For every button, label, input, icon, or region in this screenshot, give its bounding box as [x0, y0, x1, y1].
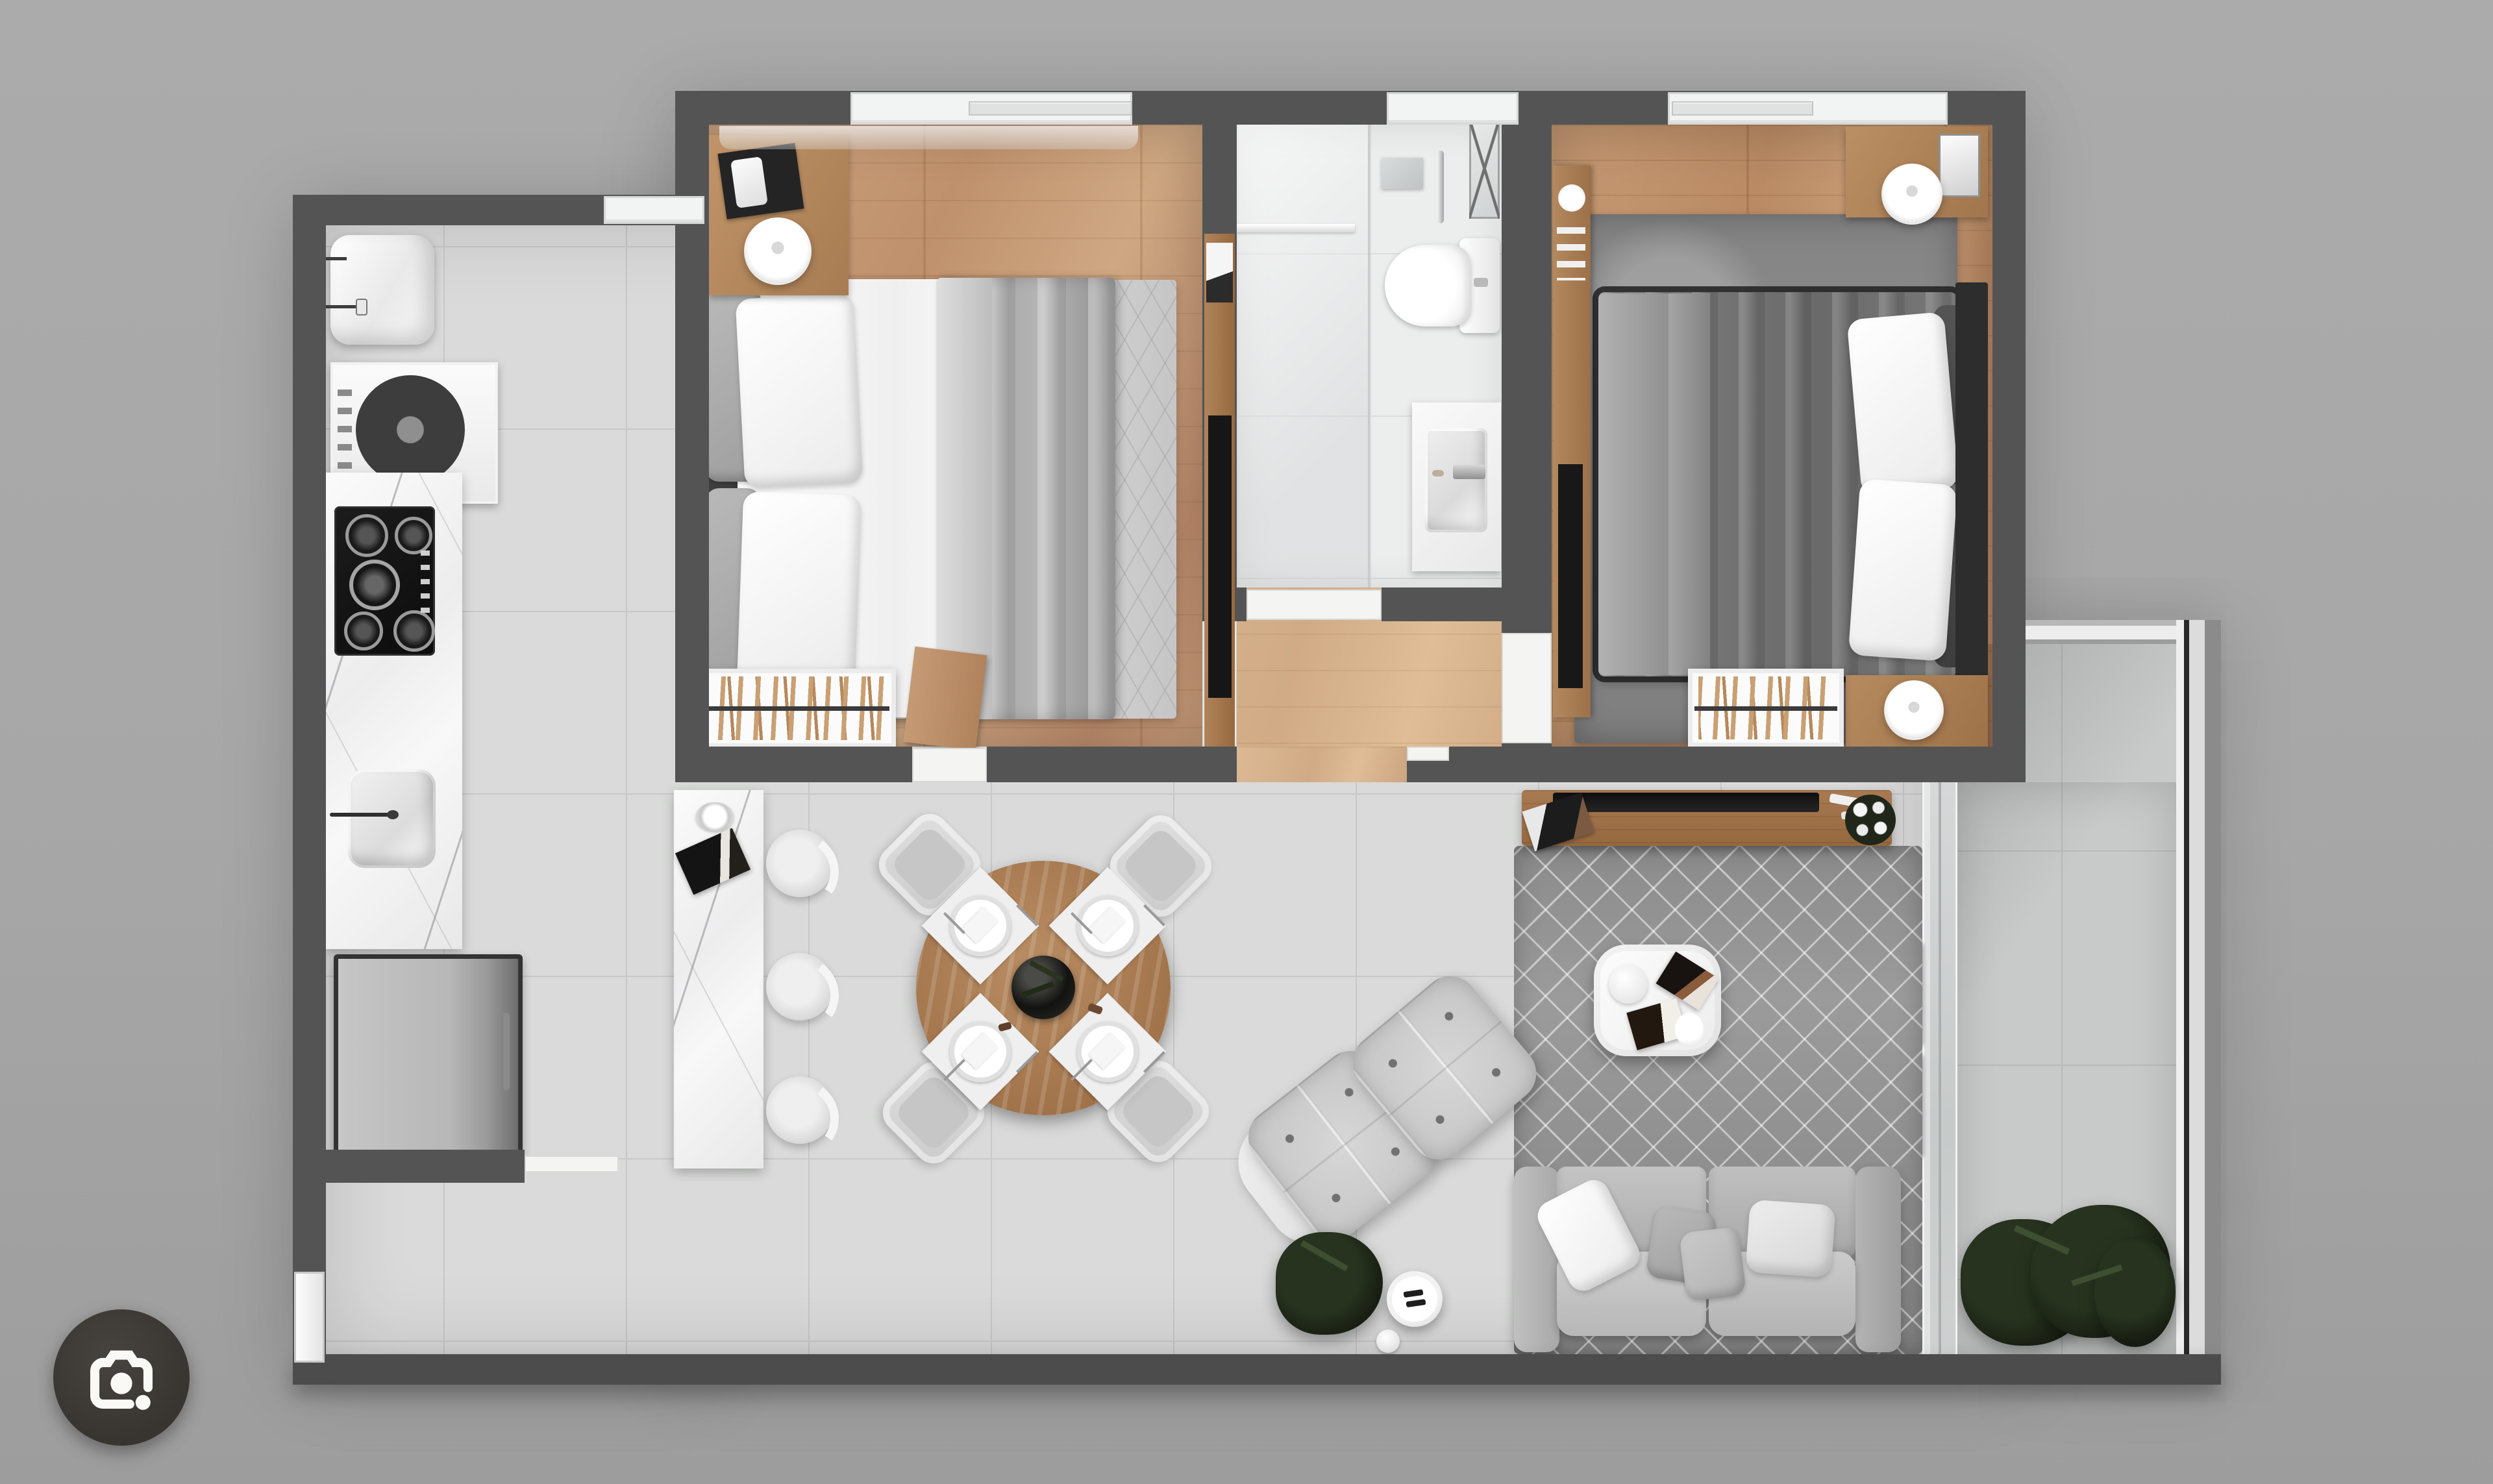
toilet-bowl [1385, 245, 1470, 327]
bed1-pillow [737, 491, 862, 690]
balcony-plant [2094, 1237, 2176, 1347]
bedroom1-door-threshold [912, 748, 987, 782]
sink-faucet [325, 257, 347, 260]
sofa-armrest-left [1514, 1167, 1559, 1352]
hallway-opening-floor [1237, 747, 1407, 782]
napkin [1089, 1033, 1126, 1070]
balcony-right-window-frame [2176, 620, 2221, 1354]
coffee-table-bowl [1675, 1013, 1704, 1046]
hall-opening-jamb [1407, 747, 1449, 761]
tv-screen [1553, 793, 1819, 812]
wall-bottom [293, 1354, 2221, 1385]
cooktop-controls [421, 550, 430, 613]
wall-bedroom2-left [1502, 91, 1552, 633]
vanity-soap [1432, 470, 1444, 476]
wall-left [293, 195, 326, 1385]
bed2-pillow [1848, 478, 1958, 662]
dinner-plate [1077, 1021, 1138, 1082]
shelf-rail [700, 706, 889, 711]
toilet-flush-button [1474, 278, 1488, 287]
washer-controls [338, 390, 352, 480]
coffee-table-disc [1609, 965, 1648, 1004]
kitchen-sink [330, 235, 434, 345]
sofa-pillow-gray [1679, 1226, 1746, 1302]
living-plant [1276, 1232, 1383, 1335]
side-table [1387, 1271, 1443, 1327]
bar-plate [696, 802, 734, 831]
refrigerator-handle [503, 1013, 510, 1091]
burner [395, 517, 432, 554]
bed2-headboard [1955, 282, 1988, 688]
vanity-faucet [1453, 465, 1485, 479]
wardrobe-tv-panel [1558, 464, 1583, 688]
nightstand-frame [1939, 134, 1980, 197]
bedroom2-window-sash [1672, 101, 1813, 116]
bathroom-window [1387, 92, 1519, 125]
wall-right [1992, 91, 2026, 782]
entry-door [294, 1272, 325, 1363]
shower-area [1237, 125, 1370, 587]
balcony-light-shadow [1957, 644, 2176, 1033]
bar-stool [766, 953, 834, 1020]
washer-drum [356, 375, 465, 484]
counter-sink-faucet-head [387, 810, 399, 819]
shower-rail [1437, 151, 1444, 223]
burner [344, 612, 383, 650]
bed1-pillow [735, 293, 863, 488]
bed2-sheet-drape [1598, 293, 1671, 675]
bedside-lamp [1884, 680, 1944, 740]
vanity-basin [1425, 428, 1487, 532]
towel-ladder [1469, 118, 1500, 219]
bedroom1-tv-panel [1208, 415, 1232, 698]
sofa-pillow-light [1745, 1200, 1835, 1278]
shower-control-panel [1382, 158, 1423, 189]
kitchen-stub-threshold [525, 1156, 619, 1172]
bedroom2-door-threshold [1502, 633, 1552, 743]
bed2-sheet-fold [1668, 293, 1710, 675]
bedroom1-window-sash [969, 101, 1132, 116]
camera-lens-icon [80, 1336, 163, 1419]
wardrobe-items [1557, 227, 1585, 280]
bar-stool [766, 1076, 834, 1144]
bedroom1-bookshelf [693, 669, 896, 748]
kitchen-window [604, 196, 704, 224]
napkin [961, 1033, 998, 1070]
bedside-lamp [1881, 164, 1942, 225]
console-plant-pot [1845, 795, 1896, 845]
glass-door-divider [1939, 782, 1941, 1354]
bedroom1-wall-art [1206, 243, 1233, 303]
wardrobe-dish [1558, 184, 1585, 212]
wall-bottom-band-2 [987, 747, 1237, 782]
floor-plan [0, 0, 2493, 1484]
bathroom-door-threshold [1246, 589, 1382, 620]
bedroom1-door-leaf [903, 647, 987, 751]
bar-stool [766, 830, 834, 897]
burner [345, 514, 388, 557]
lens-camera-button[interactable] [53, 1309, 190, 1446]
sofa-armrest-right [1855, 1167, 1901, 1352]
refrigerator [334, 954, 523, 1159]
napkin [961, 907, 998, 944]
wall-bottom-band-1 [675, 747, 912, 782]
side-table-logo [1406, 1299, 1426, 1307]
bed2-pillow [1846, 312, 1959, 496]
shelf-rail [1694, 706, 1837, 711]
burner [393, 610, 435, 652]
napkin [1089, 907, 1126, 944]
towel-bar [1237, 224, 1355, 232]
bedroom1-curtain [719, 126, 1138, 149]
counter-sink-faucet [330, 813, 392, 817]
sink-faucet-handle [356, 299, 367, 315]
burner [349, 560, 400, 610]
bedside-lamp [744, 217, 812, 285]
ladder-cross [1469, 118, 1500, 219]
wall-kitchen-stub [293, 1150, 525, 1183]
side-table-logo [1404, 1289, 1424, 1298]
nightstand-phone [730, 156, 768, 208]
wall-bottom-band-bedroom2 [1552, 747, 2026, 782]
bedroom2-bookshelf [1688, 669, 1844, 747]
wall-bath-bottom-right [1382, 587, 1502, 621]
side-table-cup [1376, 1329, 1400, 1353]
